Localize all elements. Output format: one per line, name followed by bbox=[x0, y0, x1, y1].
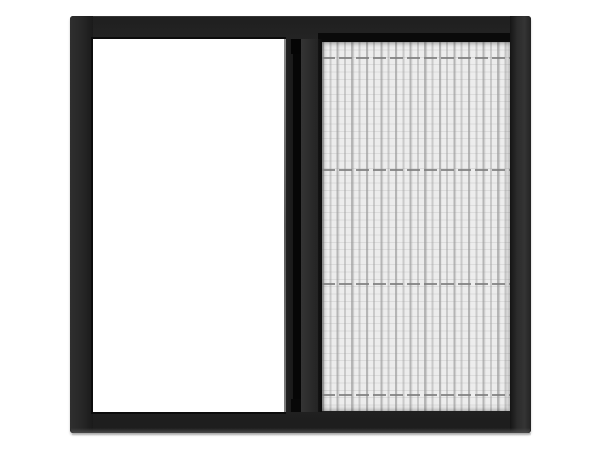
floor-shadow bbox=[72, 433, 531, 436]
screen-top-track bbox=[318, 33, 510, 42]
slider-assembly bbox=[284, 39, 322, 412]
frame-bar-right bbox=[510, 16, 531, 433]
mesh-support-cord bbox=[322, 394, 510, 396]
product-photo-scene bbox=[0, 0, 600, 450]
slider-handle-bar bbox=[301, 39, 318, 412]
frame-bar-left bbox=[70, 16, 93, 433]
glass-pane bbox=[93, 39, 284, 412]
slider-rail bbox=[286, 39, 293, 412]
mesh-support-cord bbox=[322, 169, 510, 171]
mesh-support-cord bbox=[322, 283, 510, 285]
mesh-support-cord bbox=[322, 57, 510, 59]
window-frame bbox=[70, 16, 531, 433]
pleated-mesh bbox=[322, 42, 510, 411]
slider-groove bbox=[293, 39, 301, 412]
